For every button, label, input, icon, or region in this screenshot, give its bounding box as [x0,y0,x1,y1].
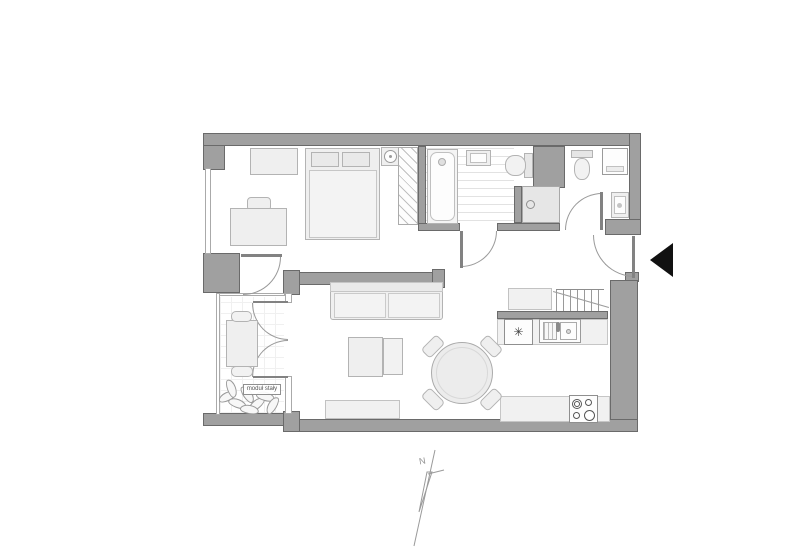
fridge-symbol: ✳ [513,326,523,338]
wardrobe-hatch [398,147,418,225]
floor-plan: ✳ moduł stały N [0,0,800,552]
bedroom-balcony-door-leaf [241,254,282,257]
tv-bench [325,400,400,419]
ottoman [383,338,403,375]
wall-right-kitchen [610,280,638,432]
dining-table-inner [436,347,488,399]
wall-bathroom-wc [533,146,565,188]
wall-shower-side [514,186,522,223]
shower-drain [526,200,535,209]
pillow-right [342,152,370,167]
sofa-backrest [330,282,443,292]
entrance-door-leaf [632,236,635,278]
wall-bedroom-bathroom [418,146,426,231]
armchair [348,337,383,377]
sink-faucet [556,322,560,332]
desk [230,208,287,246]
sink-drainer [543,322,557,340]
wall-bathroom-bottom-left [418,223,460,231]
wc-toilet-bowl [574,158,590,180]
balcony-table [226,320,258,367]
bedroom-balcony-door-arc [243,257,281,295]
clock-dot [389,155,392,158]
bathroom-washbasin-bowl [470,153,487,163]
wc-door-leaf [600,192,603,230]
wall-right-wc [629,133,641,222]
pillow-left [311,152,339,167]
bathtub-drain [438,158,446,166]
coat-rack-diagonal [553,291,609,308]
sink-drain-dot [566,329,571,334]
sofa-cushion-right [388,293,440,318]
toilet-bowl [505,155,526,176]
fridge-icon: ✳ [504,319,533,345]
shoe-bench [508,288,552,310]
wall-step-balcony-living [283,411,300,432]
french-door-upper-leaf [253,301,288,303]
wall-bathroom-bottom-right [497,223,560,231]
north-arrow-icon: N [392,438,458,552]
sofa-cushion-left [334,293,386,318]
burner-small-1 [585,399,592,406]
duvet [309,170,377,238]
wall-kitchen-half [497,311,608,319]
french-door-lower-leaf [253,376,288,378]
wc-toilet-tank [571,150,593,158]
balcony-chair-bottom [231,366,253,377]
wall-cap-left [283,270,300,295]
burner-large-1-inner [574,401,580,407]
wc-washbasin-drain [617,203,622,208]
washing-machine-drawer [606,166,624,172]
entrance-door-arc [593,235,635,277]
bathroom-door-leaf [460,231,463,268]
bedroom-window [205,168,211,254]
living-glazing-lower [285,376,292,414]
wall-top [203,133,641,146]
burner-small-2 [573,412,580,419]
wc-door-arc [565,193,602,230]
bathroom-door-arc [461,231,497,267]
coat-rack-icon [556,289,604,311]
balcony-planter-label: moduł stały [243,384,281,395]
wall-entrance-top [605,219,641,235]
balcony-chair-top [231,311,252,322]
dresser [250,148,298,175]
burner-large-2 [584,410,595,421]
north-label: N [418,455,426,466]
wall-pier-bedroom-balcony [203,253,240,293]
entrance-arrow-icon [650,243,673,277]
